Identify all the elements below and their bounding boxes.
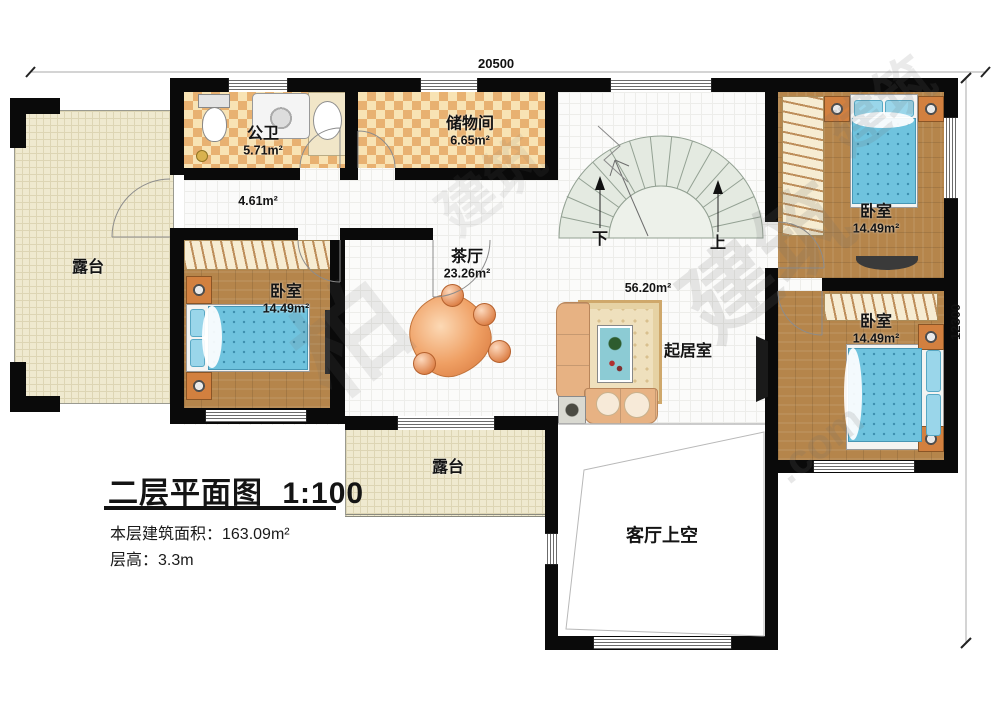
wall-segment	[340, 168, 358, 180]
terrace-corner-mark	[10, 396, 60, 412]
wall-segment	[170, 228, 298, 240]
sheet-fold	[844, 348, 862, 440]
room-area: 23.26m²	[444, 267, 491, 281]
room-name: 露台	[72, 259, 104, 277]
room-name: 卧室	[853, 204, 900, 222]
terrace-left-floor	[14, 110, 174, 404]
wall-segment	[944, 92, 958, 117]
wall-segment	[765, 473, 778, 650]
stair-up-label: 上	[710, 235, 726, 253]
room-name: 卧室	[263, 284, 310, 302]
room-label-tea-room: 茶厅 23.26m²	[444, 249, 491, 282]
tea-stool	[441, 284, 464, 307]
window	[610, 78, 712, 92]
sheet-fold	[852, 112, 914, 128]
room-label-bathroom: 公卫 5.71m²	[243, 126, 283, 159]
dimension-width: 20500	[478, 56, 514, 71]
title-underline	[104, 506, 336, 510]
room-name: 储物间	[446, 116, 494, 134]
wall-segment	[170, 237, 184, 424]
tea-stool	[488, 340, 511, 363]
floor-plan-canvas: 20500 12300 公卫 5.71m² 储物间 6.65m² 4.61m² …	[0, 0, 1000, 706]
floor-height-line: 层高：3.3m	[110, 546, 194, 570]
wall-segment	[395, 168, 545, 180]
room-area: 56.20m²	[625, 281, 672, 295]
room-label-living-void: 客厅上空	[626, 526, 698, 547]
tea-stool	[473, 303, 496, 326]
window	[813, 461, 915, 472]
room-name: 露台	[432, 459, 464, 477]
wall-segment	[545, 78, 558, 180]
floor-area-line: 本层建筑面积：163.09m²	[110, 520, 290, 544]
mattress	[852, 118, 916, 204]
room-label-bedroom-bottom-right: 卧室 14.49m²	[853, 314, 900, 347]
room-name: 茶厅	[444, 249, 491, 267]
terrace-corner-mark	[10, 98, 26, 148]
pillow	[926, 350, 941, 392]
room-area: 4.61m²	[238, 194, 278, 208]
nightstand	[186, 276, 212, 304]
room-area: 6.65m²	[446, 134, 494, 148]
room-name: 卧室	[853, 314, 900, 332]
wall-segment	[822, 278, 944, 291]
sheet-fold	[202, 306, 222, 368]
wardrobe	[184, 240, 332, 270]
room-label-landing: 56.20m²	[625, 281, 672, 295]
room-area: 5.71m²	[243, 144, 283, 158]
wall-segment	[765, 78, 778, 222]
room-label-bedroom-top-right: 卧室 14.49m²	[853, 204, 900, 237]
wall-segment	[170, 78, 958, 92]
stair-down-label: 下	[592, 231, 608, 249]
wall-segment	[345, 78, 358, 180]
side-table	[558, 396, 586, 424]
toilet-tank	[198, 94, 230, 108]
pillow	[926, 394, 941, 436]
sofa-pillow	[596, 392, 620, 416]
wall-segment	[493, 416, 545, 430]
room-label-living: 起居室	[664, 343, 712, 361]
coffee-table	[598, 326, 632, 382]
window	[944, 117, 958, 199]
sink	[313, 101, 342, 140]
wall-segment	[184, 168, 300, 180]
sofa	[556, 302, 590, 400]
sofa-pillow	[624, 392, 650, 418]
room-name: 起居室	[664, 343, 712, 361]
wall-segment	[330, 240, 345, 408]
room-area: 14.49m²	[853, 222, 900, 236]
toilet-bowl	[202, 107, 227, 142]
wall-segment	[345, 228, 433, 240]
wall-segment	[345, 416, 397, 430]
nightstand	[186, 372, 212, 400]
window	[593, 637, 732, 649]
window	[205, 410, 307, 422]
room-area: 14.49m²	[853, 332, 900, 346]
tea-stool	[413, 352, 436, 375]
room-name: 公卫	[243, 126, 283, 144]
window	[420, 78, 478, 92]
stair-direction-text: 上	[710, 235, 726, 253]
stair-direction-text: 下	[592, 231, 608, 249]
room-label-storage: 储物间 6.65m²	[446, 116, 494, 149]
room-name: 客厅上空	[626, 526, 698, 547]
room-label-bedroom-left: 卧室 14.49m²	[263, 284, 310, 317]
room-label-terrace-left: 露台	[72, 259, 104, 277]
wall-segment	[545, 416, 558, 533]
window	[228, 78, 288, 92]
nightstand	[824, 96, 850, 122]
wall-segment	[170, 92, 184, 175]
nightstand	[918, 96, 944, 122]
room-area: 14.49m²	[263, 302, 310, 316]
tv-panel	[756, 336, 768, 402]
room-label-hall: 4.61m²	[238, 194, 278, 208]
nightstand	[918, 324, 944, 350]
floor-drain	[196, 150, 208, 162]
dimension-height: 12300	[948, 304, 963, 340]
terrace-sliding-door	[397, 416, 495, 430]
room-label-terrace-middle: 露台	[432, 459, 464, 477]
wardrobe	[782, 96, 824, 236]
window	[545, 533, 558, 565]
